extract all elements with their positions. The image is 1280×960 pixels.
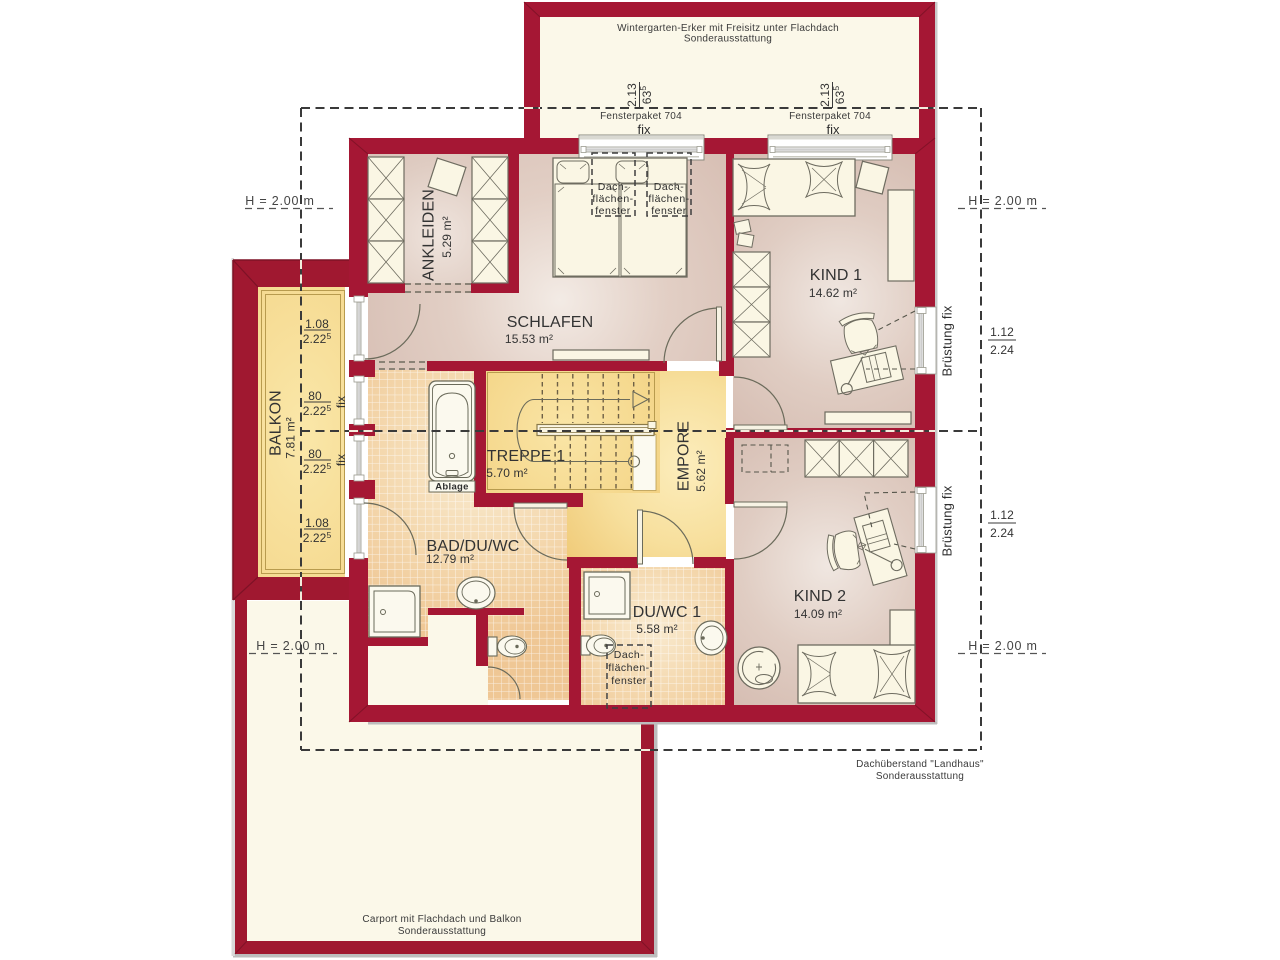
svg-text:1.12: 1.12: [990, 325, 1014, 339]
svg-text:2.13: 2.13: [818, 83, 832, 107]
svg-text:Dach-: Dach-: [598, 181, 629, 193]
svg-text:2.13: 2.13: [625, 83, 639, 107]
svg-text:fenster: fenster: [611, 675, 647, 687]
svg-text:flächen-: flächen-: [608, 662, 649, 674]
svg-text:1.08: 1.08: [305, 317, 329, 331]
svg-text:Fensterpaket 704: Fensterpaket 704: [600, 111, 682, 122]
svg-text:fix: fix: [638, 122, 652, 137]
svg-text:7.81 m²: 7.81 m²: [284, 417, 298, 458]
svg-text:5.58 m²: 5.58 m²: [636, 622, 677, 636]
svg-text:5.29 m²: 5.29 m²: [440, 216, 454, 257]
svg-text:5.62 m²: 5.62 m²: [694, 450, 708, 491]
svg-text:fenster: fenster: [595, 205, 631, 217]
svg-text:80: 80: [308, 447, 322, 461]
svg-text:Brüstung fix: Brüstung fix: [940, 305, 955, 376]
svg-text:flächen-: flächen-: [592, 193, 633, 205]
svg-text:80: 80: [308, 389, 322, 403]
svg-text:SCHLAFEN: SCHLAFEN: [507, 314, 594, 331]
svg-text:12.79 m²: 12.79 m²: [426, 552, 474, 566]
svg-text:5.70 m²: 5.70 m²: [486, 466, 527, 480]
svg-text:2.24: 2.24: [990, 526, 1014, 540]
svg-text:Dach-: Dach-: [614, 649, 645, 661]
svg-text:14.09 m²: 14.09 m²: [794, 607, 842, 621]
svg-text:H = 2.00 m: H = 2.00 m: [968, 194, 1038, 208]
svg-text:fix: fix: [334, 396, 348, 408]
svg-text:15.53 m²: 15.53 m²: [505, 332, 553, 346]
svg-text:fix: fix: [827, 122, 841, 137]
svg-text:BALKON: BALKON: [268, 390, 285, 456]
svg-text:Ablage: Ablage: [435, 482, 468, 493]
svg-text:DU/WC 1: DU/WC 1: [633, 604, 702, 621]
svg-text:flächen-: flächen-: [648, 193, 689, 205]
svg-text:2.24: 2.24: [990, 343, 1014, 357]
svg-text:ANKLEIDEN: ANKLEIDEN: [421, 189, 438, 281]
svg-text:1.12: 1.12: [990, 508, 1014, 522]
svg-text:H = 2.00 m: H = 2.00 m: [245, 194, 315, 208]
svg-text:Fensterpaket 704: Fensterpaket 704: [789, 111, 871, 122]
svg-text:Wintergarten-Erker mit Freisit: Wintergarten-Erker mit Freisitz unter Fl…: [617, 23, 839, 34]
svg-text:H = 2.00 m: H = 2.00 m: [256, 639, 326, 653]
svg-text:KIND 2: KIND 2: [794, 588, 846, 605]
svg-text:Carport mit Flachdach und Balk: Carport mit Flachdach und Balkon: [362, 914, 521, 925]
svg-text:Sonderausstattung: Sonderausstattung: [398, 926, 486, 937]
svg-text:H = 2.00 m: H = 2.00 m: [968, 639, 1038, 653]
svg-text:Dachüberstand "Landhaus": Dachüberstand "Landhaus": [856, 759, 984, 770]
svg-text:1.08: 1.08: [305, 516, 329, 530]
svg-text:14.62 m²: 14.62 m²: [809, 286, 857, 300]
svg-text:EMPORE: EMPORE: [676, 421, 693, 491]
svg-text:Brüstung fix: Brüstung fix: [940, 485, 955, 556]
svg-text:fenster: fenster: [651, 205, 687, 217]
svg-text:KIND 1: KIND 1: [810, 267, 862, 284]
svg-text:fix: fix: [334, 454, 348, 466]
svg-text:Sonderausstattung: Sonderausstattung: [684, 34, 772, 45]
svg-text:TREPPE 1: TREPPE 1: [487, 448, 566, 465]
svg-text:Sonderausstattung: Sonderausstattung: [876, 771, 964, 782]
svg-text:Dach-: Dach-: [654, 181, 685, 193]
